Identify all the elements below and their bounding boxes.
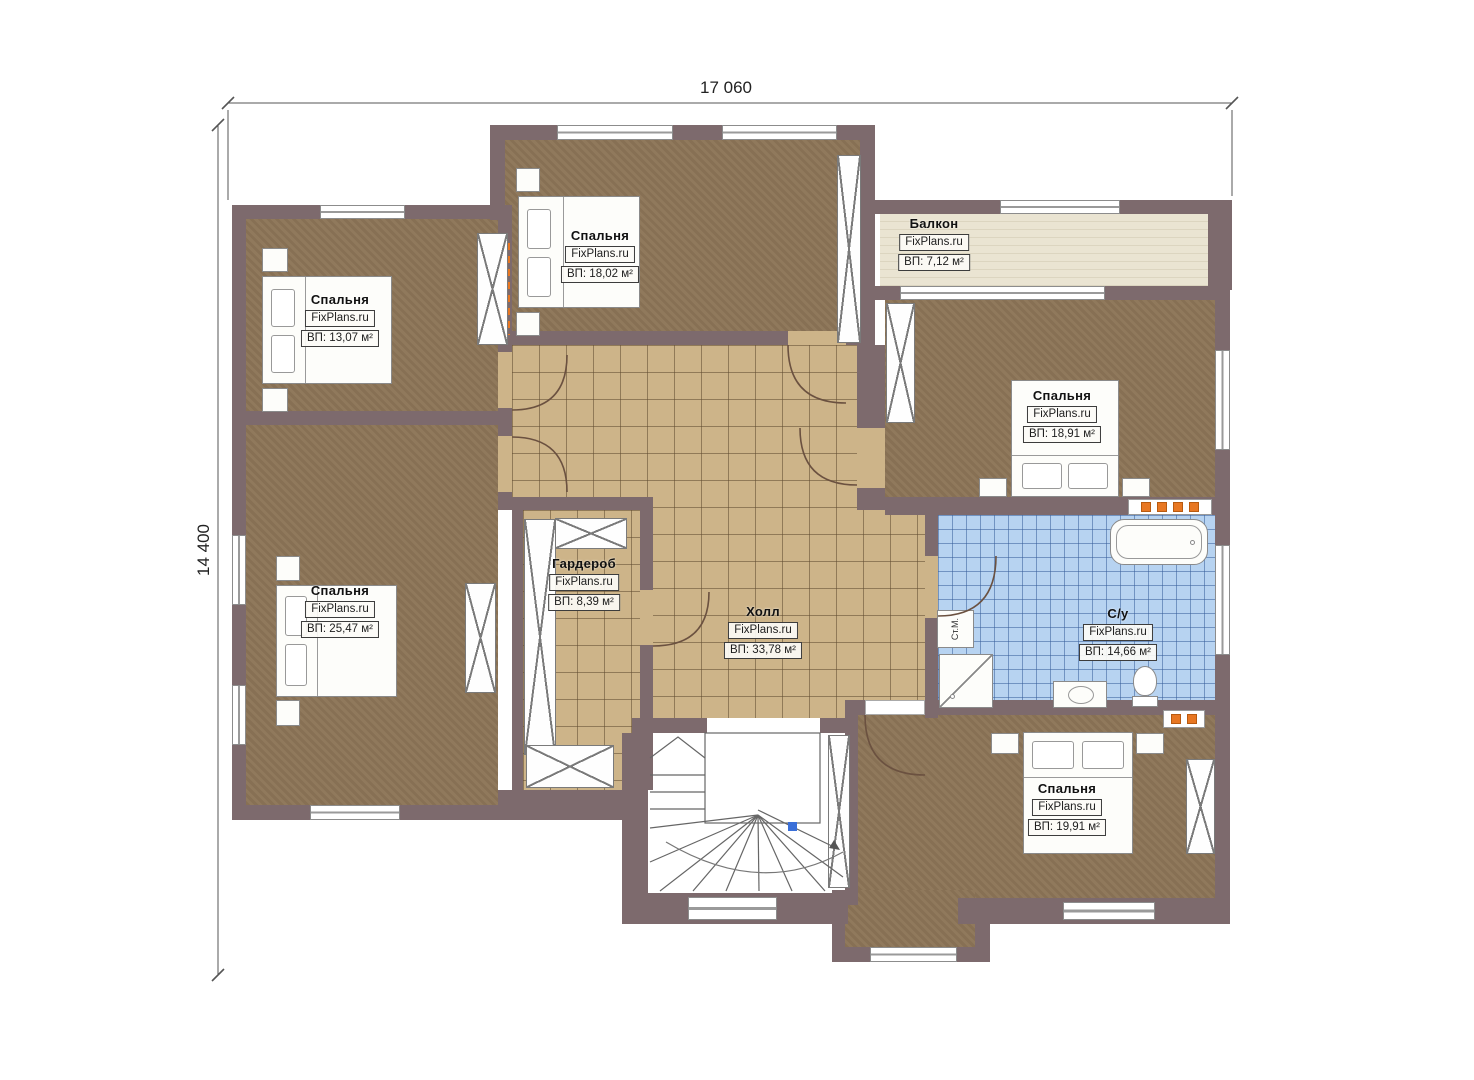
rail-segment xyxy=(1187,714,1197,724)
nightstand xyxy=(276,700,300,726)
window xyxy=(310,805,400,820)
room-area: ВП: 18,91 м² xyxy=(1023,426,1101,443)
room-watermark: FixPlans.ru xyxy=(1083,624,1153,641)
bathtub-drain xyxy=(1190,540,1195,545)
room-label-bedroom-top: Спальня FixPlans.ru ВП: 18,02 м² xyxy=(561,228,639,283)
toilet-tank xyxy=(1132,696,1158,707)
room-label-hall: Холл FixPlans.ru ВП: 33,78 м² xyxy=(724,604,802,659)
pillow xyxy=(271,335,295,373)
room-name: Балкон xyxy=(898,216,970,231)
bed-fold-line xyxy=(1024,777,1132,778)
room-name: Спальня xyxy=(301,292,379,307)
dimension-width: 17 060 xyxy=(700,78,752,98)
room-watermark: FixPlans.ru xyxy=(1027,406,1097,423)
pillow xyxy=(1022,463,1062,489)
wall xyxy=(246,411,498,425)
room-area: ВП: 25,47 м² xyxy=(301,621,379,638)
closet xyxy=(465,583,496,693)
door-opening xyxy=(865,700,925,715)
window xyxy=(232,685,246,745)
room-name: Гардероб xyxy=(548,556,620,571)
nightstand xyxy=(276,556,300,581)
window xyxy=(1215,350,1230,450)
dimension-height: 14 400 xyxy=(194,524,214,576)
room-watermark: FixPlans.ru xyxy=(305,310,375,327)
room-name: Спальня xyxy=(1023,388,1101,403)
room-area: ВП: 13,07 м² xyxy=(301,330,379,347)
floor-plan: Ст.М. xyxy=(0,0,1474,1080)
rail-segment xyxy=(1157,502,1167,512)
pillow xyxy=(527,257,551,297)
room-label-bedroom-topleft: Спальня FixPlans.ru ВП: 13,07 м² xyxy=(301,292,379,347)
room-name: Спальня xyxy=(1028,781,1106,796)
closet xyxy=(886,303,915,423)
wall xyxy=(820,718,845,733)
window xyxy=(870,947,957,962)
bathtub xyxy=(1110,519,1208,565)
pillow xyxy=(1068,463,1108,489)
closet xyxy=(477,233,508,345)
door-opening xyxy=(498,352,512,408)
nightstand xyxy=(262,388,288,412)
closet xyxy=(526,745,614,788)
room-area: ВП: 7,12 м² xyxy=(898,254,970,271)
room-name: С/у xyxy=(1079,606,1157,621)
rail-segment xyxy=(1173,502,1183,512)
window xyxy=(688,897,777,920)
room-name: Спальня xyxy=(301,583,379,598)
rail-segment xyxy=(1171,714,1181,724)
towel-rail xyxy=(1128,499,1212,515)
room-area: ВП: 14,66 м² xyxy=(1079,644,1157,661)
nightstand xyxy=(1122,478,1150,497)
room-area: ВП: 19,91 м² xyxy=(1028,819,1106,836)
floor-staircase xyxy=(648,733,845,893)
room-label-bedroom-bottomright: Спальня FixPlans.ru ВП: 19,91 м² xyxy=(1028,781,1106,836)
closet xyxy=(828,735,850,888)
door-opening xyxy=(925,556,938,618)
room-label-balcony: Балкон FixPlans.ru ВП: 7,12 м² xyxy=(898,216,970,271)
room-label-wardrobe: Гардероб FixPlans.ru ВП: 8,39 м² xyxy=(548,556,620,611)
closet xyxy=(555,518,627,549)
room-name: Спальня xyxy=(561,228,639,243)
hall-landing-opening xyxy=(707,718,820,733)
wall xyxy=(512,497,653,510)
rail-segment xyxy=(1189,502,1199,512)
floor-bedroom-bottomright-bay xyxy=(845,890,975,947)
room-watermark: FixPlans.ru xyxy=(305,601,375,618)
nightstand xyxy=(516,168,540,192)
shower xyxy=(939,654,993,708)
nightstand xyxy=(516,312,540,336)
window xyxy=(1063,902,1155,920)
nightstand xyxy=(991,733,1019,754)
room-watermark: FixPlans.ru xyxy=(1032,799,1102,816)
room-watermark: FixPlans.ru xyxy=(549,574,619,591)
shower-drain xyxy=(950,694,955,699)
room-label-bedroom-left: Спальня FixPlans.ru ВП: 25,47 м² xyxy=(301,583,379,638)
window xyxy=(722,125,837,140)
door-opening xyxy=(857,428,885,488)
washing-machine-label: Ст.М. xyxy=(951,618,961,640)
room-name: Холл xyxy=(724,604,802,619)
toilet xyxy=(1130,664,1160,708)
room-area: ВП: 18,02 м² xyxy=(561,266,639,283)
room-label-bathroom: С/у FixPlans.ru ВП: 14,66 м² xyxy=(1079,606,1157,661)
nightstand xyxy=(1136,733,1164,754)
pillow xyxy=(1082,741,1124,769)
room-watermark: FixPlans.ru xyxy=(899,234,969,251)
nightstand xyxy=(262,248,288,272)
room-watermark: FixPlans.ru xyxy=(565,246,635,263)
towel-rail xyxy=(1163,710,1205,728)
window xyxy=(1215,545,1230,655)
wall xyxy=(975,898,990,947)
sink-vanity xyxy=(1053,681,1107,708)
room-area: ВП: 8,39 м² xyxy=(548,594,620,611)
door-opening xyxy=(640,590,653,645)
wall xyxy=(622,733,648,893)
closet xyxy=(524,519,556,755)
pillow xyxy=(527,209,551,249)
toilet-bowl xyxy=(1133,666,1157,696)
window xyxy=(320,205,405,219)
room-watermark: FixPlans.ru xyxy=(728,622,798,639)
window xyxy=(232,535,246,605)
closet xyxy=(837,155,861,343)
pillow xyxy=(271,289,295,327)
pillow xyxy=(1032,741,1074,769)
sink-bowl xyxy=(1068,686,1094,704)
washing-machine: Ст.М. xyxy=(937,610,974,648)
room-label-bedroom-right: Спальня FixPlans.ru ВП: 18,91 м² xyxy=(1023,388,1101,443)
wall xyxy=(512,510,523,790)
door-opening xyxy=(498,436,512,492)
window xyxy=(557,125,673,140)
closet xyxy=(1186,759,1215,854)
wall xyxy=(632,718,707,733)
bed-fold-line xyxy=(1012,455,1118,456)
window xyxy=(900,286,1105,300)
rail-segment xyxy=(1141,502,1151,512)
window xyxy=(1000,200,1120,214)
nightstand xyxy=(979,478,1007,497)
pillow xyxy=(285,644,307,686)
room-area: ВП: 33,78 м² xyxy=(724,642,802,659)
wall xyxy=(860,125,875,345)
